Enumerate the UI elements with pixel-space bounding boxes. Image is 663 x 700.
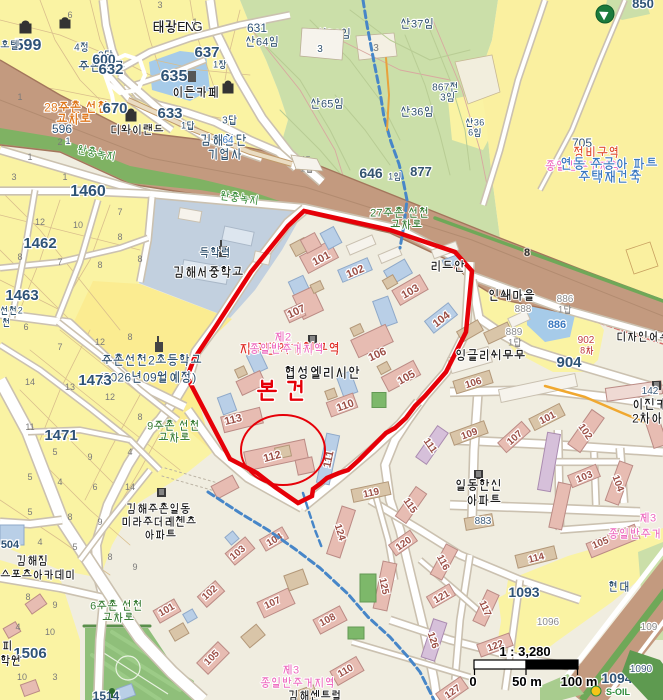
svg-text:9: 9: [150, 370, 157, 384]
svg-text:3: 3: [650, 513, 656, 525]
svg-text:100 m: 100 m: [561, 674, 598, 689]
svg-text:6: 6: [417, 107, 423, 119]
svg-text:6: 6: [90, 601, 96, 613]
svg-text:5: 5: [27, 507, 32, 517]
svg-text:883: 883: [475, 516, 492, 527]
svg-text:886: 886: [557, 294, 574, 305]
svg-text:5: 5: [27, 472, 32, 482]
svg-text:633: 633: [157, 105, 182, 122]
svg-text:50 m: 50 m: [512, 674, 542, 689]
svg-text:4: 4: [127, 447, 132, 457]
svg-text:0: 0: [143, 370, 150, 384]
svg-text:6: 6: [124, 370, 131, 384]
svg-text:10: 10: [45, 627, 55, 637]
svg-text:8: 8: [137, 412, 142, 422]
svg-text:504: 504: [1, 539, 20, 551]
svg-text:1: 1: [62, 172, 67, 182]
svg-text:2: 2: [285, 332, 291, 344]
svg-text:5: 5: [327, 99, 333, 111]
svg-text:12: 12: [95, 337, 105, 347]
svg-text:6: 6: [479, 118, 484, 128]
svg-text:1471: 1471: [44, 427, 77, 444]
svg-text:6: 6: [92, 482, 97, 492]
svg-text:8: 8: [67, 512, 72, 522]
svg-text:904: 904: [556, 354, 582, 371]
svg-text:11: 11: [25, 422, 34, 432]
svg-text:2: 2: [57, 137, 62, 147]
svg-text:): ): [192, 370, 196, 384]
svg-text:S-OIL: S-OIL: [606, 687, 631, 697]
svg-text:888: 888: [515, 304, 532, 315]
svg-text:13: 13: [65, 382, 75, 392]
svg-text:3: 3: [440, 93, 446, 104]
svg-text:9: 9: [132, 562, 137, 572]
svg-text:3: 3: [411, 107, 417, 119]
svg-text:4: 4: [57, 477, 62, 487]
svg-text:1: 1: [181, 121, 186, 131]
svg-text:646: 646: [359, 165, 383, 181]
svg-text:2: 2: [632, 411, 639, 425]
svg-text:850: 850: [632, 0, 654, 11]
svg-text:3: 3: [317, 44, 323, 55]
svg-text:1: 1: [17, 92, 22, 102]
svg-text:8: 8: [127, 332, 132, 342]
svg-text:635: 635: [161, 68, 188, 85]
svg-text:2: 2: [18, 306, 23, 316]
svg-text:670: 670: [102, 100, 127, 117]
svg-text:877: 877: [410, 164, 432, 179]
svg-text:7: 7: [117, 207, 122, 217]
svg-text:6: 6: [23, 322, 28, 332]
svg-text:6: 6: [67, 10, 72, 20]
svg-text:142: 142: [642, 386, 659, 397]
svg-text:4: 4: [262, 37, 268, 49]
svg-text:1473: 1473: [78, 372, 111, 389]
svg-text:7: 7: [57, 342, 62, 352]
svg-text:8: 8: [25, 592, 30, 602]
svg-text:3: 3: [293, 665, 299, 677]
svg-text:8: 8: [580, 346, 585, 356]
svg-text:9: 9: [52, 600, 57, 610]
svg-text:4: 4: [37, 537, 42, 547]
svg-text:1: 1: [558, 305, 563, 315]
svg-text:1462: 1462: [23, 235, 56, 252]
svg-text:1: 1: [508, 338, 513, 348]
svg-text:3: 3: [52, 672, 57, 682]
svg-text:637: 637: [194, 44, 219, 61]
svg-text:7: 7: [417, 19, 423, 31]
svg-text:3: 3: [474, 118, 479, 128]
svg-text:1460: 1460: [70, 183, 106, 200]
svg-text:8: 8: [524, 247, 530, 259]
svg-text:9: 9: [87, 452, 92, 462]
svg-text:9: 9: [147, 421, 153, 433]
svg-text:109: 109: [641, 622, 658, 633]
svg-text:1 : 3,280: 1 : 3,280: [499, 644, 550, 659]
svg-text:12: 12: [105, 392, 115, 402]
svg-text:1: 1: [27, 152, 32, 162]
svg-text:2: 2: [370, 208, 376, 220]
svg-text:8: 8: [51, 100, 58, 114]
svg-text:886: 886: [548, 319, 566, 331]
svg-text:10: 10: [17, 672, 27, 682]
svg-text:4: 4: [15, 622, 20, 632]
svg-text:889: 889: [506, 327, 523, 338]
svg-text:2: 2: [148, 353, 155, 367]
svg-text:64: 64: [222, 135, 234, 146]
svg-text:6: 6: [468, 128, 473, 138]
svg-text:1: 1: [388, 172, 393, 182]
svg-text:8: 8: [117, 232, 122, 242]
svg-text:1090: 1090: [630, 664, 653, 675]
svg-text:6: 6: [321, 99, 327, 111]
svg-text:5: 5: [52, 447, 57, 457]
svg-text:2: 2: [117, 370, 124, 384]
svg-text:7: 7: [57, 257, 62, 267]
svg-text:8: 8: [97, 260, 102, 270]
svg-text:1: 1: [213, 60, 218, 70]
svg-text:631: 631: [247, 21, 267, 35]
svg-text:3: 3: [222, 116, 228, 127]
svg-text:9: 9: [97, 517, 102, 527]
svg-text:7: 7: [377, 208, 383, 220]
svg-text:6: 6: [256, 37, 262, 49]
svg-text:3: 3: [157, 0, 162, 10]
svg-text:902: 902: [578, 335, 595, 346]
svg-text:8: 8: [17, 252, 22, 262]
svg-text:3: 3: [411, 19, 417, 31]
svg-text:0: 0: [469, 674, 476, 689]
svg-text:12: 12: [35, 217, 45, 227]
svg-text:14: 14: [25, 377, 35, 387]
svg-text:1: 1: [65, 136, 70, 146]
svg-text:1514: 1514: [93, 689, 120, 700]
svg-text:3: 3: [373, 43, 379, 54]
svg-text:1093: 1093: [508, 584, 539, 600]
svg-text:8: 8: [137, 254, 142, 264]
svg-text:3: 3: [11, 172, 16, 182]
svg-text:1096: 1096: [537, 617, 560, 628]
svg-text:1463: 1463: [5, 287, 38, 304]
svg-text:596: 596: [52, 122, 72, 136]
svg-text:5: 5: [72, 542, 77, 552]
svg-text:632: 632: [98, 61, 123, 78]
svg-text:4: 4: [74, 43, 80, 54]
svg-text:8: 8: [107, 552, 112, 562]
svg-text:14: 14: [125, 482, 135, 492]
svg-text:10: 10: [73, 220, 83, 230]
svg-text:1: 1: [192, 17, 197, 27]
